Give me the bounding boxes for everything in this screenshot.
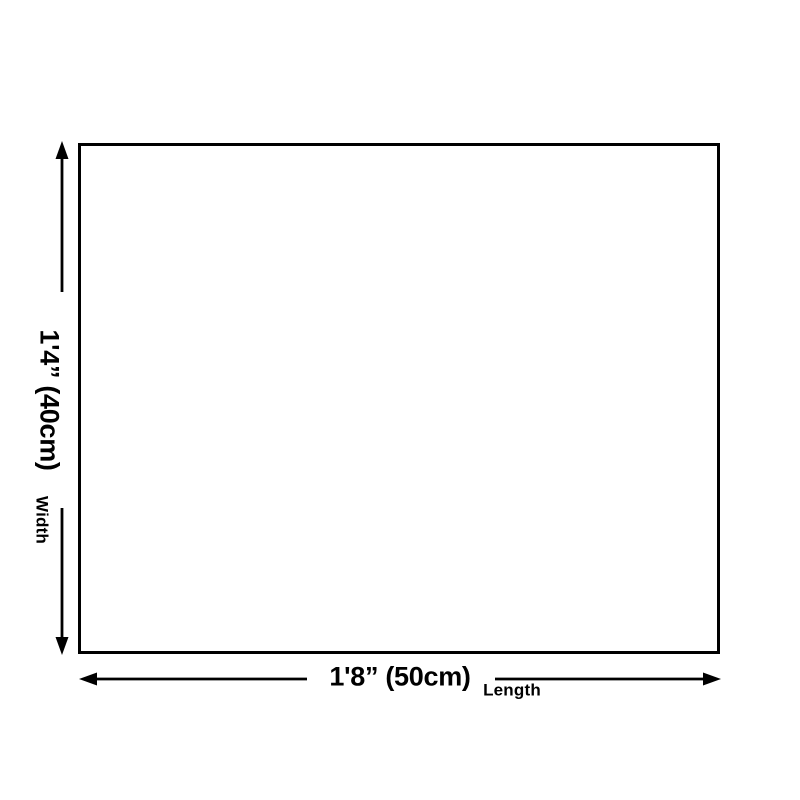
arrow-right-icon	[703, 673, 721, 686]
dimension-diagram: 1'4” (40cm) Width 1'8” (50cm) Length	[0, 0, 800, 800]
arrow-left-icon	[79, 673, 97, 686]
arrow-down-icon	[56, 637, 69, 655]
width-dimension-caption: Width	[34, 496, 51, 544]
width-dimension-value: 1'4” (40cm)	[36, 329, 63, 470]
length-dimension-caption: Length	[483, 682, 541, 699]
product-outline-rectangle	[78, 143, 720, 654]
arrow-up-icon	[56, 141, 69, 159]
length-dimension-value: 1'8” (50cm)	[329, 664, 470, 691]
